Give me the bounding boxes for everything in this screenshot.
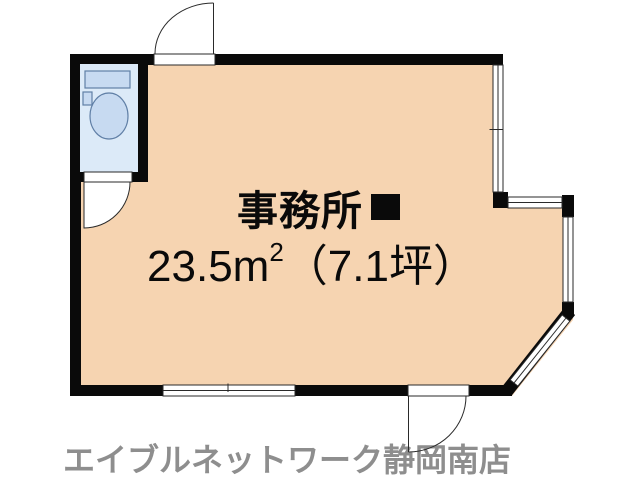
wall-corner-post-diagonal-top bbox=[562, 302, 574, 315]
room-area-label: 23.5m2（7.1坪） bbox=[147, 237, 477, 291]
floorplan-canvas: 事務所 23.5m2（7.1坪） エイブルネットワーク静岡南店 bbox=[0, 0, 640, 480]
window-bottom bbox=[163, 384, 295, 397]
room-area-superscript: 2 bbox=[269, 237, 283, 267]
room-name-label: 事務所 bbox=[237, 188, 363, 234]
window-step bbox=[508, 197, 562, 208]
window-right-lower bbox=[563, 217, 573, 302]
wall-corner-post-step-left bbox=[493, 192, 508, 208]
top-door-swing-arc bbox=[155, 3, 214, 54]
toilet-door-threshold bbox=[84, 172, 132, 182]
room-marker-square bbox=[371, 194, 400, 220]
toilet-tank bbox=[85, 71, 130, 88]
floorplan-drawing: 事務所 23.5m2（7.1坪） エイブルネットワーク静岡南店 bbox=[0, 0, 640, 480]
wall-corner-post-step-right bbox=[562, 195, 574, 217]
room-area-tsubo: （7.1坪） bbox=[284, 242, 477, 291]
top-door-threshold bbox=[154, 54, 215, 65]
entrance-door-top bbox=[154, 3, 215, 65]
toilet-flush-handle bbox=[83, 92, 92, 105]
toilet-bowl bbox=[90, 93, 128, 139]
store-name-text: エイブルネットワーク静岡南店 bbox=[63, 442, 511, 478]
room-area-sqm: 23.5m bbox=[147, 242, 269, 291]
bottom-door-threshold bbox=[408, 385, 469, 396]
